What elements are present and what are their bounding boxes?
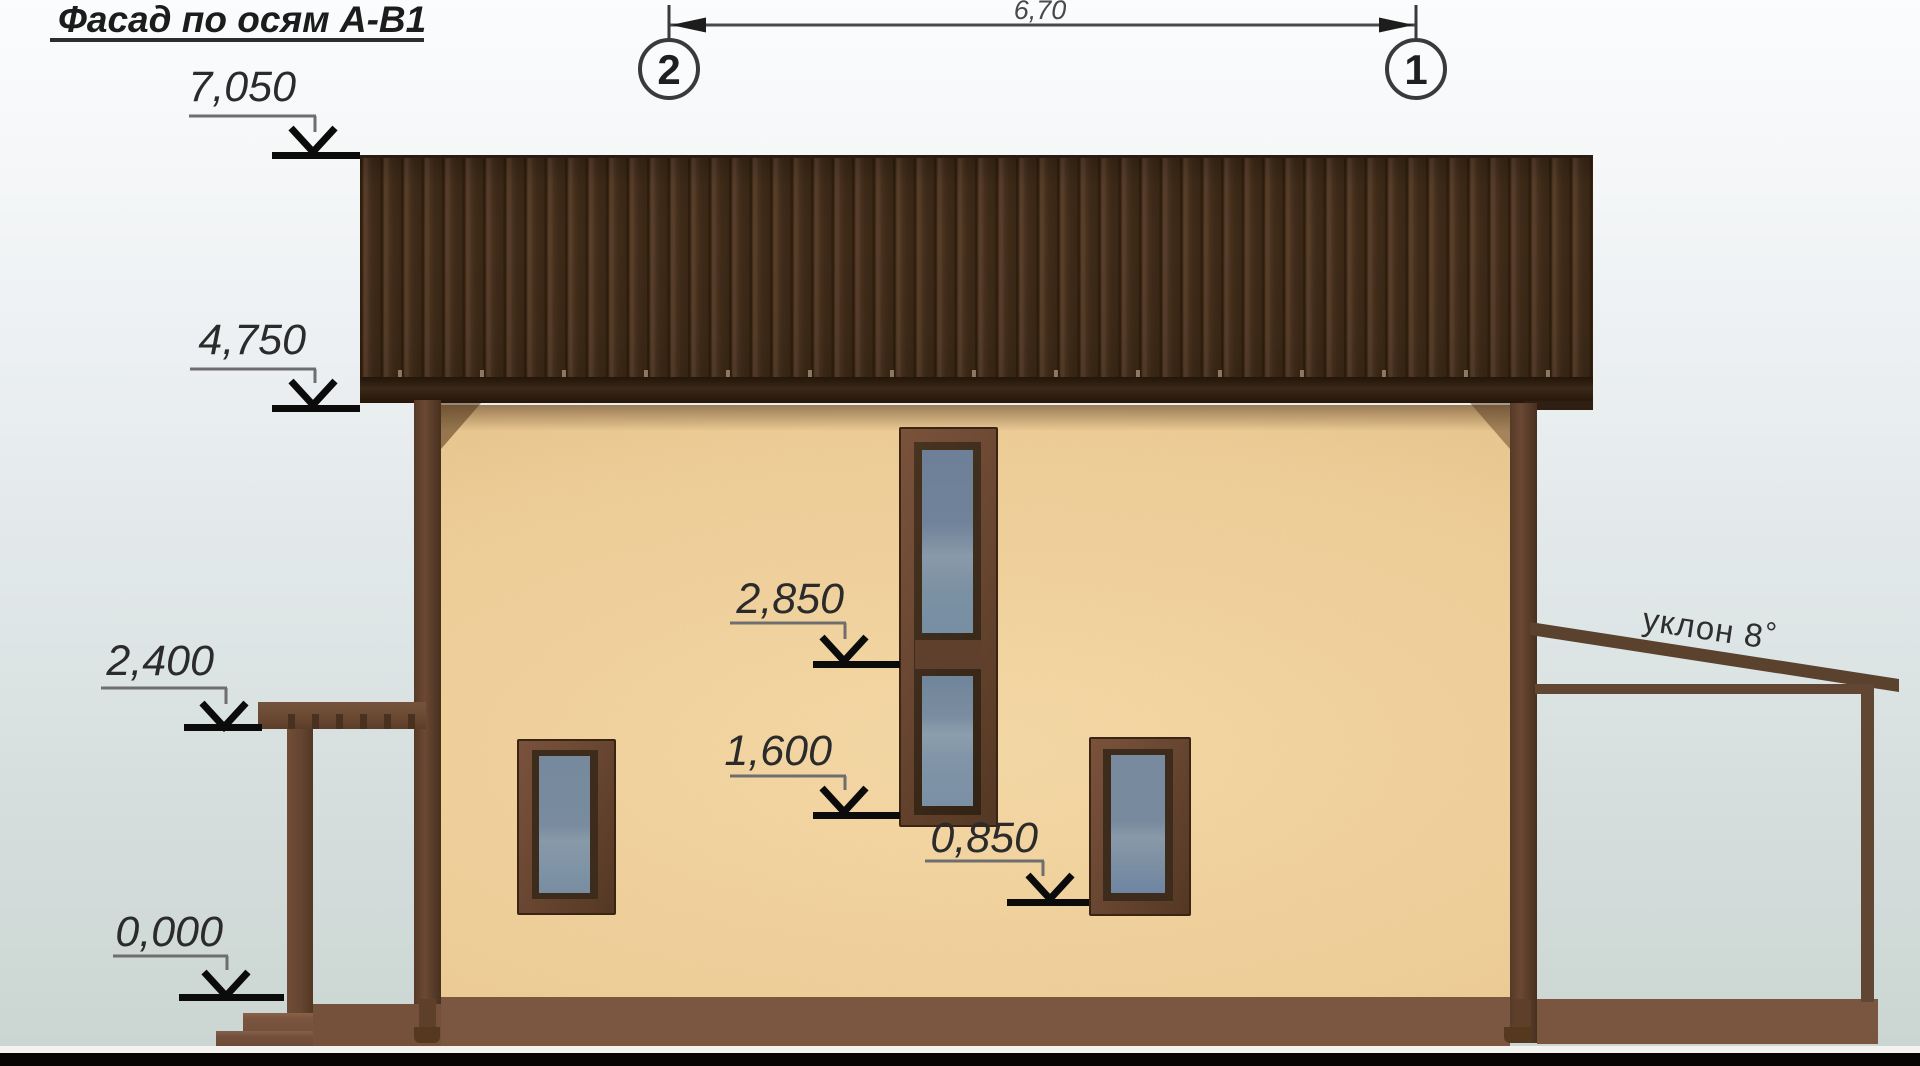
svg-text:2: 2	[657, 46, 680, 93]
svg-text:1: 1	[1404, 46, 1427, 93]
